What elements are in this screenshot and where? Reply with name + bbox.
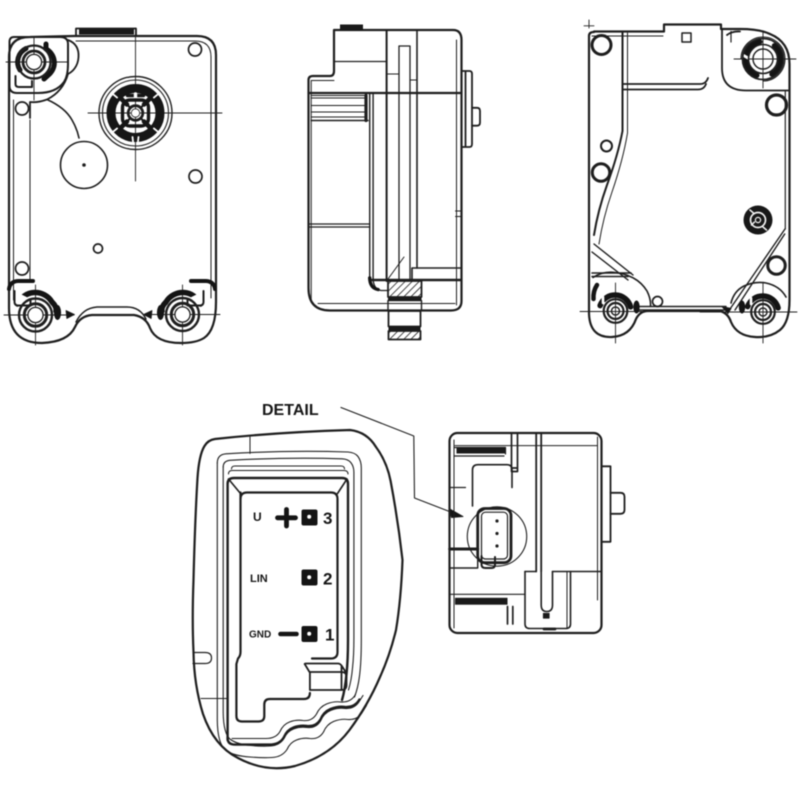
svg-text:2: 2 (323, 570, 332, 589)
svg-text:3: 3 (323, 509, 332, 528)
svg-text:U: U (253, 510, 262, 524)
svg-text:DETAIL: DETAIL (262, 402, 319, 419)
svg-text:1: 1 (325, 626, 334, 645)
svg-text:GND: GND (249, 630, 271, 641)
svg-text:LIN: LIN (250, 573, 268, 585)
